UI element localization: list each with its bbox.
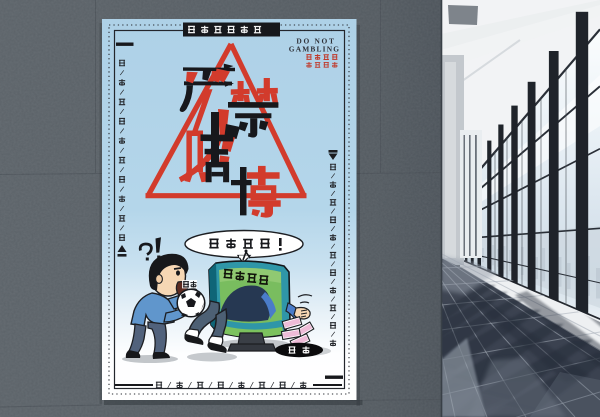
svg-text:GAMBLING: GAMBLING: [289, 45, 340, 54]
